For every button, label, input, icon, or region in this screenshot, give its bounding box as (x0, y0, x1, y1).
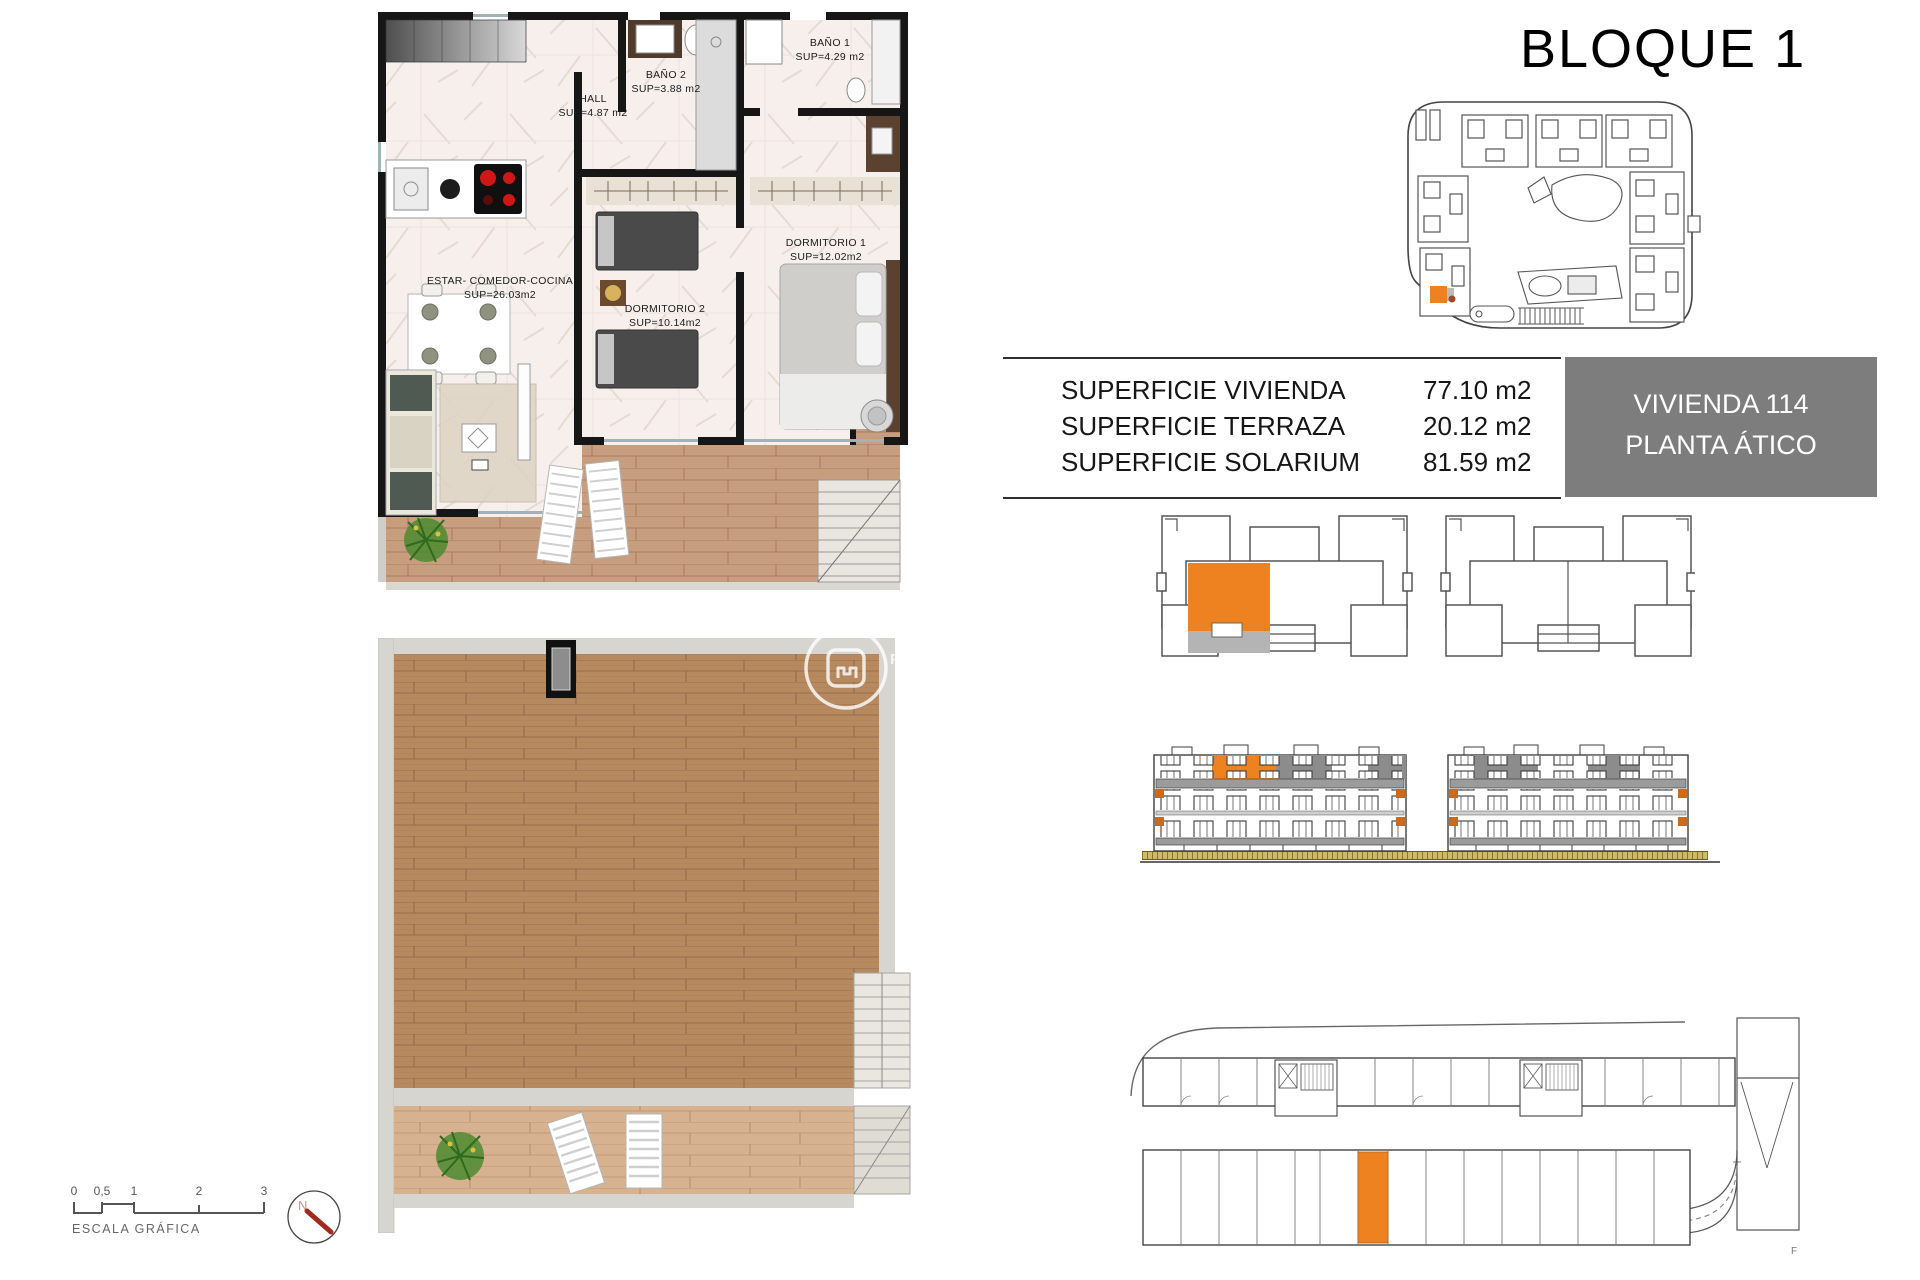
room-label-hall-name: HALL (579, 93, 606, 105)
ground-fence (1142, 851, 1708, 860)
key-plan-highlight-unit (1188, 563, 1270, 631)
site-marker-dot (1449, 296, 1456, 303)
balcony-slab (1156, 779, 1404, 788)
island-sink (394, 168, 428, 210)
areas-table: SUPERFICIE VIVIENDA 77.10 m2 SUPERFICIE … (1003, 357, 1561, 499)
key-plan-terrace-notch (1212, 623, 1242, 637)
room-label-bath1-area: SUP=4.29 m2 (796, 51, 865, 63)
north-compass: N (283, 1186, 345, 1248)
garage-building (1143, 1058, 1735, 1245)
room-label-bath2-name: BAÑO 2 (646, 68, 686, 81)
room-label-living-name: ESTAR- COMEDOR-COCINA (427, 275, 573, 287)
table-row: SUPERFICIE TERRAZA 20.12 m2 (1003, 409, 1561, 443)
solarium-top-wall (394, 638, 895, 654)
scale-tick-3: 3 (261, 1184, 268, 1198)
area-value: 20.12 m2 (1423, 409, 1531, 443)
shower-1 (872, 20, 900, 104)
plant-solarium (436, 1132, 484, 1180)
area-value: 77.10 m2 (1423, 373, 1531, 407)
unit-floor: PLANTA ÁTICO (1565, 430, 1877, 461)
vanity-1 (746, 20, 782, 64)
site-building-top-3 (1606, 115, 1672, 167)
key-plan-left (1157, 516, 1412, 656)
kitchen-cabinets (386, 20, 526, 62)
site-highlight-unit (1430, 286, 1447, 303)
area-label: SUPERFICIE TERRAZA (1061, 409, 1345, 443)
site-entrance (1688, 216, 1700, 232)
table-row: SUPERFICIE SOLARIUM 81.59 m2 (1003, 445, 1561, 479)
plant (404, 518, 448, 562)
scale-bar-label: ESCALA GRÁFICA (72, 1221, 201, 1236)
elevation-right (1448, 745, 1688, 851)
site-building-right-2 (1630, 248, 1684, 322)
solarium-plan: P R (378, 638, 913, 1233)
room-label-living-area: SUP=26.03m2 (464, 289, 536, 301)
key-plans (1150, 505, 1695, 665)
parking-row-bottom (1143, 1150, 1690, 1245)
scale-tick-05: 0,5 (94, 1184, 111, 1198)
coffee-table (462, 424, 496, 452)
coffee-maker (440, 179, 460, 199)
room-label-bath1-name: BAÑO 1 (810, 36, 850, 49)
scale-tick-2: 2 (196, 1184, 203, 1198)
area-label: SUPERFICIE VIVIENDA (1061, 373, 1346, 407)
toilet-1 (847, 78, 865, 102)
solarium-left-wall (378, 638, 394, 1233)
solarium-stairs (854, 973, 910, 1194)
scale-ticks: 0 0,5 1 2 3 (71, 1184, 268, 1198)
solarium-deck (394, 654, 879, 1088)
terrace-side-wall (378, 517, 386, 582)
deck-divider (394, 1088, 854, 1106)
watermark-letters: P R (890, 651, 913, 668)
site-building-top-1 (1462, 115, 1528, 167)
site-building-left-1 (1418, 176, 1468, 242)
scale-bar-graphic (74, 1202, 264, 1213)
cooktop (474, 164, 522, 214)
table-row: SUPERFICIE VIVIENDA 77.10 m2 (1003, 373, 1561, 407)
living-room (386, 364, 536, 515)
parking-plan: F (1125, 1000, 1815, 1265)
site-building-left-2 (1420, 248, 1470, 316)
unit-badge: VIVIENDA 114 PLANTA ÁTICO (1565, 357, 1877, 497)
shower-2 (696, 20, 736, 170)
balcony-slab (1450, 779, 1686, 788)
key-plan-right (1441, 516, 1695, 656)
corridor-walls (1143, 1106, 1735, 1150)
garage-highlight-unit (1358, 1152, 1388, 1243)
unit-number: VIVIENDA 114 (1565, 389, 1877, 420)
ramp (1678, 1018, 1799, 1233)
balcony-slab (1156, 838, 1404, 845)
room-label-bath2-area: SUP=3.88 m2 (632, 83, 701, 95)
room-label-dorm2-area: SUP=10.14m2 (629, 317, 701, 329)
room-label-hall-area: SUP=4.87 m2 (559, 107, 628, 119)
room-label-dorm1-name: DORMITORIO 1 (786, 237, 866, 249)
elevation-left (1154, 745, 1406, 851)
stair-core-2 (1520, 1060, 1582, 1116)
site-building-top-2 (1536, 115, 1602, 167)
site-building-right-1 (1630, 172, 1684, 244)
scale-bar: 0 0,5 1 2 3 ESCALA GRÁFICA (68, 1183, 298, 1241)
apartment-floor-plan: HALL SUP=4.87 m2 BAÑO 2 SUP=3.88 m2 BAÑO… (378, 12, 908, 592)
page-title: BLOQUE 1 (1520, 18, 1920, 80)
area-label: SUPERFICIE SOLARIUM (1061, 445, 1360, 479)
tv-sideboard (518, 364, 530, 460)
lower-terrace-rim (394, 1194, 854, 1208)
room-label-dorm1-area: SUP=12.02m2 (790, 251, 862, 263)
room-label-dorm2-name: DORMITORIO 2 (625, 303, 705, 315)
scale-tick-1: 1 (131, 1184, 138, 1198)
corner-mark: F (1791, 1246, 1797, 1257)
terrace-rim (386, 582, 900, 590)
balcony-slab (1450, 838, 1686, 845)
scale-tick-0: 0 (71, 1184, 78, 1198)
elevations (1140, 735, 1720, 885)
stair-core-1 (1275, 1060, 1337, 1116)
site-plan (1400, 90, 1710, 340)
chimney-flue (552, 648, 570, 690)
area-value: 81.59 m2 (1423, 445, 1531, 479)
tv-remote-tray (472, 460, 488, 470)
sun-lounger-d (626, 1114, 662, 1188)
